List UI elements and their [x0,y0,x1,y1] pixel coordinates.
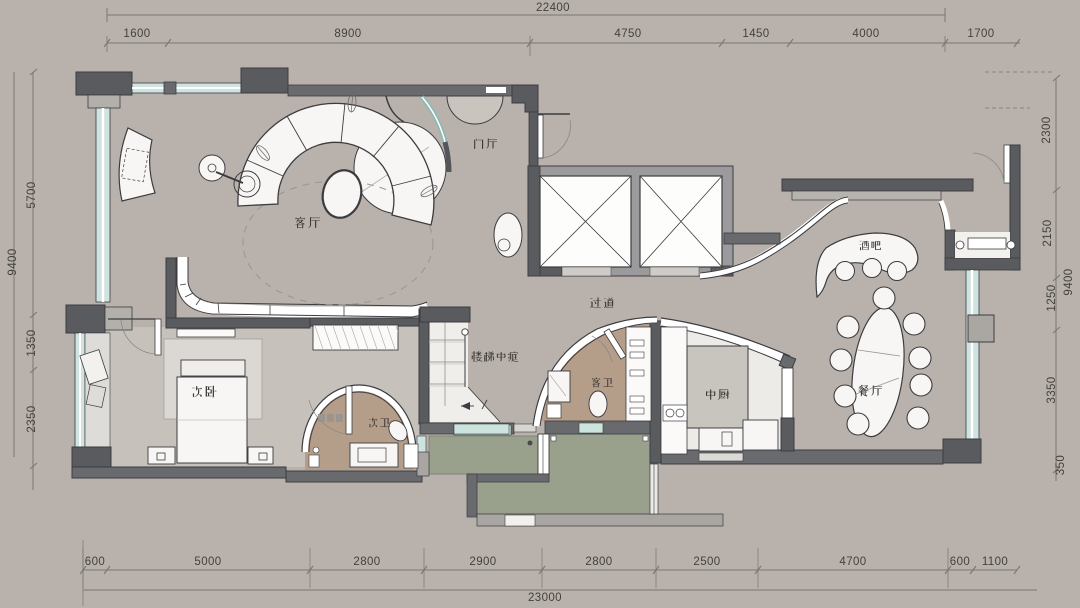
svg-text:2500: 2500 [693,556,720,568]
svg-text:23000: 23000 [528,592,562,604]
svg-text:4700: 4700 [839,556,866,568]
svg-text:1700: 1700 [967,28,994,40]
svg-text:1600: 1600 [123,28,150,40]
svg-text:2150: 2150 [1042,219,1054,246]
svg-text:2300: 2300 [1041,116,1053,143]
svg-text:2900: 2900 [469,556,496,568]
svg-text:1250: 1250 [1046,284,1058,311]
svg-text:4000: 4000 [852,28,879,40]
svg-text:2800: 2800 [353,556,380,568]
svg-text:9400: 9400 [7,248,19,275]
svg-text:2350: 2350 [26,405,38,432]
svg-text:5000: 5000 [194,556,221,568]
svg-text:22400: 22400 [536,2,570,14]
svg-text:9400: 9400 [1063,268,1075,295]
svg-text:350: 350 [1055,455,1067,475]
svg-text:1450: 1450 [742,28,769,40]
svg-text:1350: 1350 [26,329,38,356]
svg-text:8900: 8900 [334,28,361,40]
svg-text:1100: 1100 [982,556,1008,568]
svg-text:600: 600 [85,556,105,568]
svg-text:4750: 4750 [614,28,641,40]
svg-text:3350: 3350 [1046,376,1058,403]
svg-text:2800: 2800 [585,556,612,568]
svg-text:5700: 5700 [26,181,38,208]
svg-text:600: 600 [950,556,970,568]
